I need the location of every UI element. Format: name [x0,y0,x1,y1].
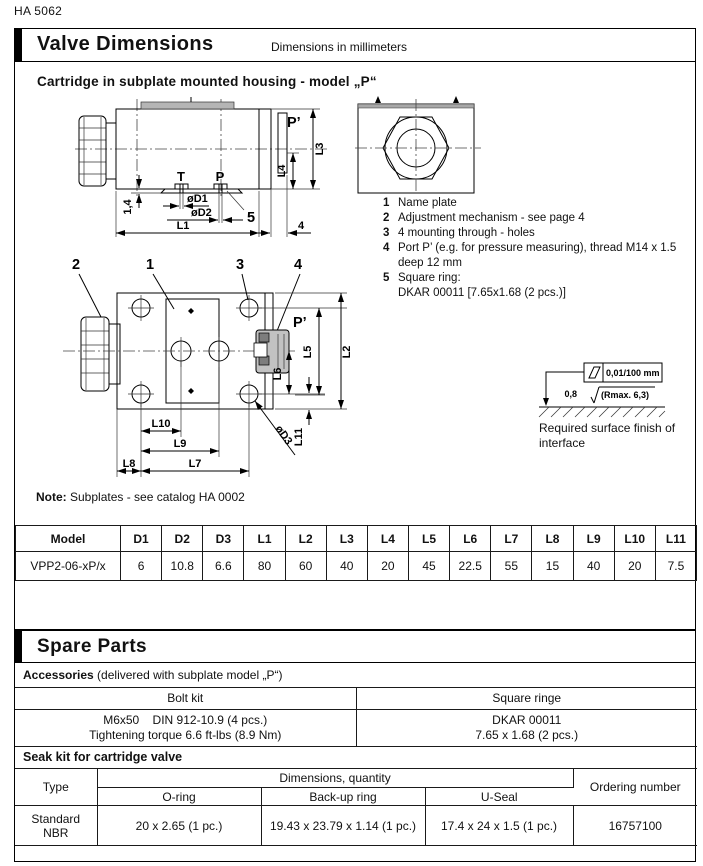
oring-cell: 20 x 2.65 (1 pc.) [97,806,261,846]
dim-l1-label: L1 [177,220,190,232]
hex-front-view-drawing [355,95,485,195]
accessories-label: Accessories [23,668,94,682]
type-cell: Standard NBR [15,806,97,846]
dim-l3-label: L3 [314,143,326,156]
callout-1: 1 [146,257,154,273]
top-view-drawing: 2 1 3 4 [57,255,357,487]
subplate-note: Note: Subplates - see catalog HA 0002 [36,490,245,504]
adjustment-knob [79,116,116,186]
spare-parts-accent-bar [15,631,22,662]
table-header-row: Model D1 D2 D3 L1 L2 L3 L4 L5 L6 L7 L8 L… [16,526,697,552]
subplate-face [161,184,242,193]
dim-l5-label: L5 [302,346,314,359]
seal-table-row: Standard NBR 20 x 2.65 (1 pc.) 19.43 x 2… [15,806,697,846]
roughness-max: (Rmax. 6,3) [601,390,649,400]
page-title: Valve Dimensions [37,33,213,56]
callout-item: 3 4 mounting through - holes [383,226,697,241]
dim-l4-label: L4 [276,164,288,178]
accessories-table-header-row: Bolt kit Square ringe [15,688,697,709]
surface-finish-caption: Required surface finish of interface [539,421,697,451]
backup-ring-header: Back-up ring [261,788,425,806]
accessories-row: Accessories (delivered with subplate mod… [15,663,695,688]
type-header: Type [15,769,97,806]
accessories-table: Bolt kit Square ringe M6x50 DIN 912-10.9… [15,688,697,747]
spare-parts-header: Spare Parts [15,629,695,663]
dim-d3-label: øD3 [273,423,295,447]
section-heading: Cartridge in subplate mounted housing - … [37,74,377,89]
dim-l11-label: L11 [293,428,305,446]
bolt-kit-header: Bolt kit [15,688,356,709]
dimensions-table: Model D1 D2 D3 L1 L2 L3 L4 L5 L6 L7 L8 L… [15,525,697,581]
note-text: Subplates - see catalog HA 0002 [67,490,245,504]
valve-body [116,97,287,189]
note-label: Note: [36,490,67,504]
dim-l6-label: L6 [272,368,284,381]
accessories-table-row: M6x50 DIN 912-10.9 (4 pcs.) Tightening t… [15,709,697,746]
callout-item: 5 Square ring: DKAR 00011 [7.65x1.68 (2 … [383,271,697,301]
callout-leaders [79,274,300,331]
roughness-value: 0,8 [564,389,577,399]
item-5-callout: 5 [247,210,255,226]
callout-4: 4 [294,257,302,273]
callout-item: 4 Port P’ (e.g. for pressure measuring),… [383,241,697,271]
callout-item: 1 Name plate [383,196,697,211]
ordering-number-header: Ordering number [573,769,697,806]
square-ring-cell: DKAR 00011 7.65 x 1.68 (2 pcs.) [356,709,697,746]
doc-number: HA 5062 [14,4,62,18]
page-frame: Valve Dimensions Dimensions in millimete… [14,28,696,862]
ordering-number-cell: 16757100 [573,806,697,846]
dims-quantity-header: Dimensions, quantity [97,769,573,788]
port-p-label: P [216,169,225,184]
units-note: Dimensions in millimeters [271,40,407,54]
callout-legend: 1 Name plate 2 Adjustment mechanism - se… [383,196,697,301]
table-row: VPP2-06-xP/x 6 10.8 6.6 80 60 40 20 45 2… [16,552,697,581]
ground-hatch [539,407,665,417]
useal-cell: 17.4 x 24 x 1.5 (1 pc.) [425,806,573,846]
seal-table-header-row: Type Dimensions, quantity Ordering numbe… [15,769,697,788]
dim-l7-label: L7 [189,458,202,470]
adjustment-knob [81,317,120,391]
dim-l9-label: L9 [174,438,187,450]
dim-d2-label: øD2 [191,207,212,219]
dim-l2-label: L2 [341,346,353,359]
oring-header: O-ring [97,788,261,806]
square-ring-header: Square ringe [356,688,697,709]
useal-header: U-Seal [425,788,573,806]
side-view-drawing: T P P’ [75,95,340,253]
surface-finish-symbol: 0,01/100 mm 0,8 (Rmax. 6,3) [531,355,701,419]
port-p-prime-label: P’ [293,315,307,331]
model-cell: VPP2-06-xP/x [16,552,121,581]
bolt-kit-cell: M6x50 DIN 912-10.9 (4 pcs.) Tightening t… [15,709,356,746]
flatness-value: 0,01/100 mm [606,368,660,378]
dim-d1-label: øD1 [187,193,208,205]
dimension-lines [117,293,347,477]
centerlines [75,99,327,197]
title-accent-bar [15,29,22,61]
callout-3: 3 [236,257,244,273]
dim-l10-label: L10 [152,418,171,430]
callout-item: 2 Adjustment mechanism - see page 4 [383,211,697,226]
catalog-page: HA 5062 Valve Dimensions Dimensions in m… [0,0,703,866]
spare-parts-title: Spare Parts [37,636,147,658]
backup-ring-cell: 19.43 x 23.79 x 1.14 (1 pc.) [261,806,425,846]
port-t-label: T [177,169,185,184]
dim-1-4-label: 1,4 [122,198,134,214]
port-p-prime-plug [254,330,289,373]
accessories-note: (delivered with subplate model „P“) [94,668,283,682]
port-p-prime-label: P’ [287,115,301,131]
seal-kit-heading: Seak kit for cartridge valve [15,746,695,768]
callout-2: 2 [72,257,80,273]
dim-l8-label: L8 [123,458,136,470]
seal-kit-table: Type Dimensions, quantity Ordering numbe… [15,768,697,846]
dim-4-label: 4 [298,220,305,232]
title-bar: Valve Dimensions Dimensions in millimete… [15,29,695,62]
